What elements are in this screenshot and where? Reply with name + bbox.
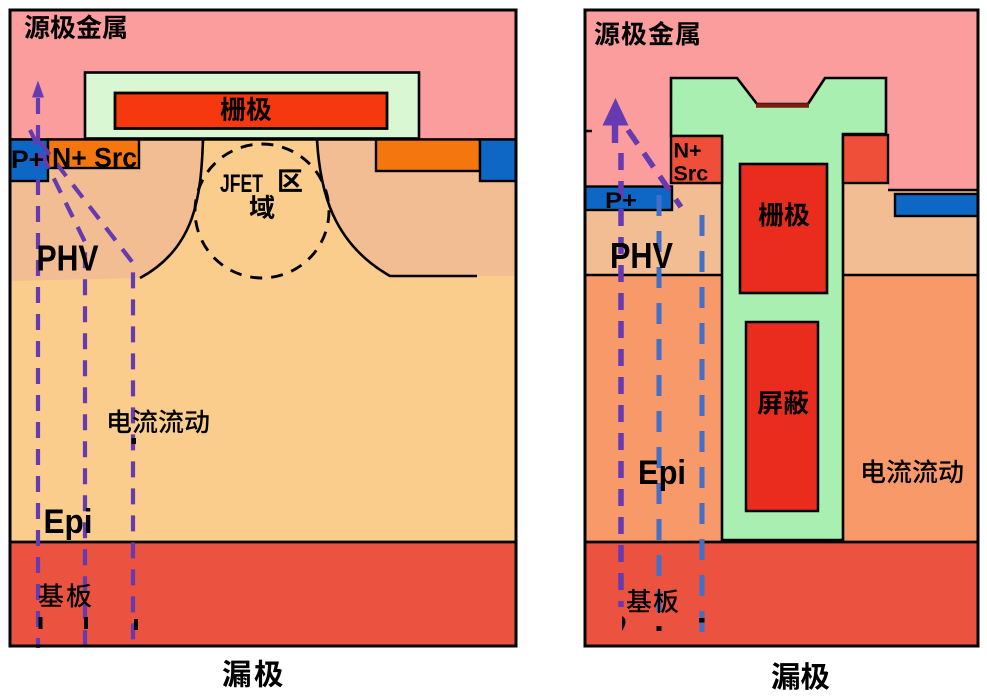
svg-text:N+ Src: N+ Src bbox=[52, 142, 137, 173]
svg-text:P+: P+ bbox=[605, 188, 637, 213]
svg-text:Epi: Epi bbox=[44, 503, 93, 541]
svg-text:PHV: PHV bbox=[610, 235, 673, 276]
svg-text:PHV: PHV bbox=[37, 238, 99, 279]
svg-text:JFET: JFET bbox=[220, 170, 263, 198]
svg-text:Src: Src bbox=[674, 162, 709, 186]
svg-text:Epi: Epi bbox=[638, 454, 686, 492]
svg-text:N+: N+ bbox=[674, 139, 702, 163]
svg-text:P+: P+ bbox=[11, 146, 44, 174]
